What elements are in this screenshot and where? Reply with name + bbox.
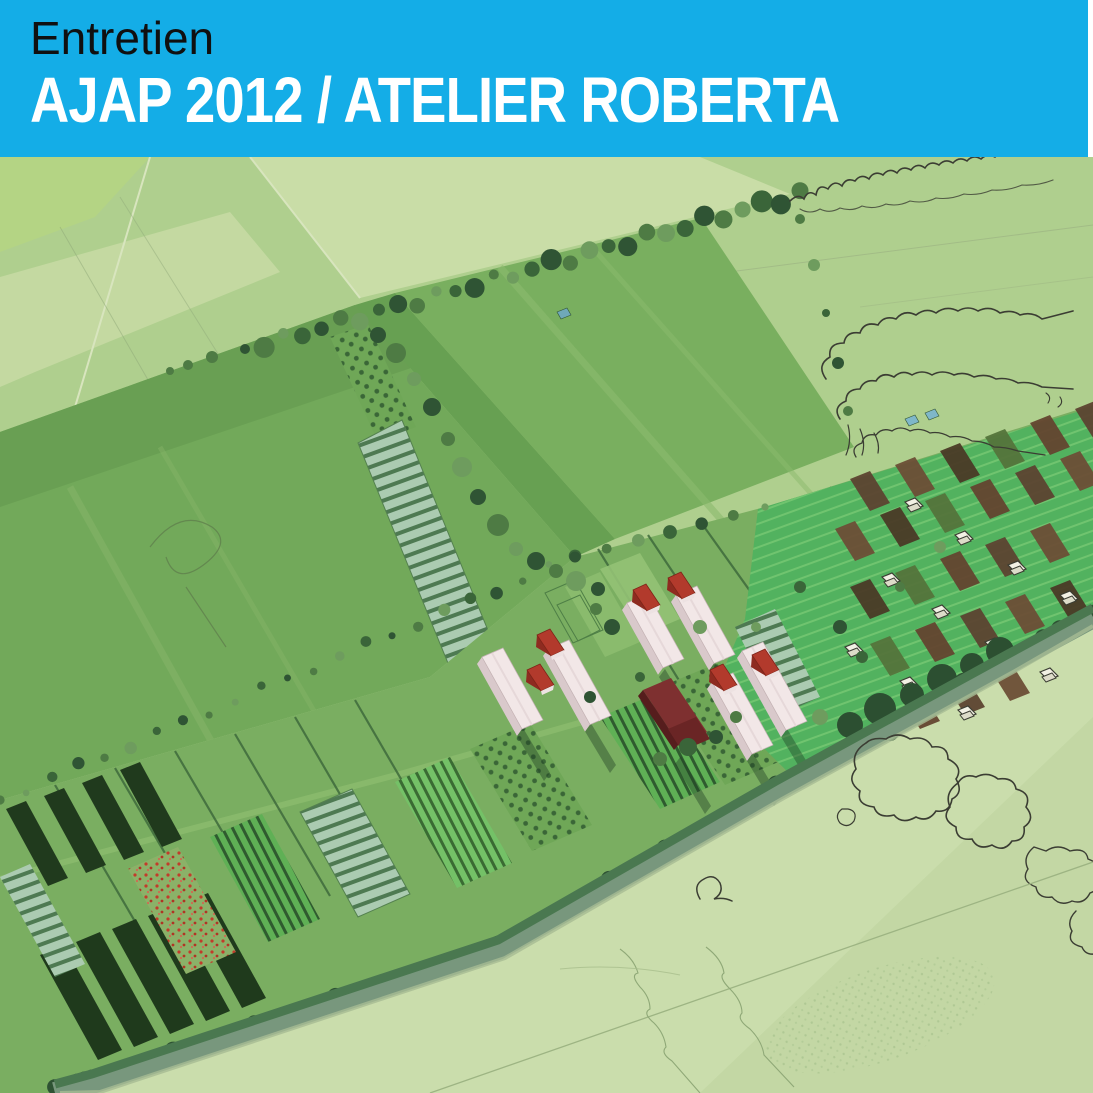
landscape-illustration [0, 157, 1093, 1093]
article-kicker: Entretien [30, 14, 1093, 62]
article-title: AJAP 2012 / ATELIER ROBERTA [30, 68, 934, 132]
landscape-illustration-canvas [0, 157, 1093, 1093]
article-banner: Entretien AJAP 2012 / ATELIER ROBERTA [0, 0, 1093, 157]
banner-edge-sliver [1088, 0, 1093, 157]
article-card: Entretien AJAP 2012 / ATELIER ROBERTA [0, 0, 1093, 1093]
